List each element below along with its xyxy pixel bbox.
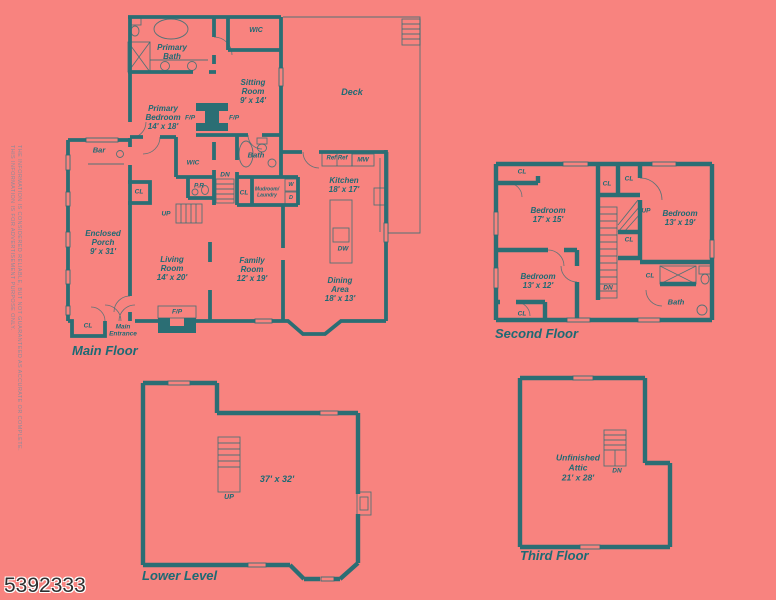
label-main-entrance: Main Entrance: [109, 324, 137, 339]
label-powder-room: P.R: [194, 182, 204, 189]
label-deck: Deck: [341, 87, 363, 97]
label-fp-bottom: F/P: [172, 308, 182, 315]
label-cl-b: CL: [625, 175, 634, 182]
label-attic: Unfinished Attic 21' x 28': [556, 453, 600, 482]
label-lower-dims: 37' x 32': [260, 474, 294, 484]
label-up-main: UP: [161, 210, 170, 217]
toilet-icon: [699, 266, 711, 274]
stairs-up-icon: [176, 204, 202, 223]
label-dishwasher: DW: [338, 245, 349, 252]
kitchen-sink-icon: [374, 188, 385, 205]
label-fp-right: F/P: [229, 114, 239, 121]
label-dn-main: DN: [220, 171, 229, 178]
label-washer: W: [288, 182, 293, 188]
label-up-second: UP: [641, 207, 650, 214]
label-cl-hall: CL: [240, 189, 249, 196]
label-primary-bath: Primary Bath: [157, 43, 187, 61]
label-family-room: Family Room 12' x 19': [237, 256, 268, 284]
deck-stairs-icon: [402, 24, 420, 39]
sink-icon: [268, 159, 276, 167]
sink-icon: [188, 62, 197, 71]
label-cl-c: CL: [625, 236, 634, 243]
sink-icon: [697, 305, 707, 315]
label-cl-d: CL: [646, 272, 655, 279]
floorplan-drawing: [0, 0, 776, 600]
label-cl-bar: CL: [135, 188, 144, 195]
label-cl-bl: CL: [518, 310, 527, 317]
label-bedroom-2: Bedroom 13' x 19': [662, 209, 697, 227]
winder-stairs-icon: [618, 200, 640, 232]
label-dn-third: DN: [612, 467, 621, 474]
title-second-floor: Second Floor: [495, 326, 578, 341]
label-enclosed-porch: Enclosed Porch 9' x 31': [85, 229, 121, 257]
photo-id: 5392333: [4, 574, 86, 598]
third-floor-fixtures: [604, 430, 626, 466]
label-cl-entry: CL: [84, 322, 93, 329]
label-wic-top: WIC: [249, 27, 263, 35]
label-microwave: MW: [357, 156, 369, 163]
lower-level-fixtures: [218, 437, 371, 515]
chimney-icon: [357, 492, 371, 515]
disclaimer-line-2: THE INFORMATION IS CONSIDERED RELIABLE, …: [16, 145, 22, 451]
disclaimer-line-1: THIS INFORMATION IS FOR ADVERTISEMENT PU…: [9, 145, 15, 331]
title-main-floor: Main Floor: [72, 343, 138, 358]
label-living-room: Living Room 14' x 20': [157, 255, 188, 283]
label-dn-second: DN: [603, 284, 612, 291]
label-bath-main: Bath: [248, 152, 265, 161]
label-kitchen: Kitchen 18' x 17': [329, 176, 360, 194]
label-wic-2: WIC: [187, 159, 200, 166]
label-cl-tl: CL: [518, 168, 527, 175]
main-floor-plan: [66, 17, 420, 336]
label-cl-a: CL: [603, 180, 612, 187]
label-bedroom-3: Bedroom 13' x 12': [520, 272, 555, 290]
deck-outline: [283, 17, 420, 233]
label-bar: Bar: [93, 147, 106, 156]
bar-sink-icon: [117, 151, 124, 158]
label-fp-left: F/P: [185, 114, 195, 121]
label-mudroom: Mudroom/ Laundry: [255, 187, 279, 199]
primary-fireplace-icon: [196, 103, 228, 131]
toilet-icon: [257, 138, 267, 144]
label-dining-area: Dining Area 18' x 13': [325, 276, 356, 304]
label-bath-second: Bath: [668, 299, 685, 308]
stairs-up-icon: [218, 437, 240, 492]
living-fireplace-icon: [158, 318, 196, 333]
sink-icon: [161, 62, 170, 71]
label-dryer: D: [289, 195, 293, 201]
title-third-floor: Third Floor: [520, 548, 589, 563]
floorplan-page: Primary Bath WIC Sitting Room 9' x 14' D…: [0, 0, 776, 600]
lower-level-plan: [143, 381, 371, 581]
label-fridge: Ref Ref: [326, 156, 347, 163]
label-sitting-room: Sitting Room 9' x 14': [240, 78, 266, 106]
label-primary-bedroom: Primary Bedroom 14' x 18': [145, 104, 180, 132]
sink-icon: [192, 189, 198, 195]
label-bedroom-1: Bedroom 17' x 15': [530, 206, 565, 224]
dishwasher-icon: [333, 228, 349, 242]
label-up-lower: UP: [224, 494, 234, 502]
title-lower-level: Lower Level: [142, 568, 217, 583]
tub-icon: [154, 19, 188, 39]
